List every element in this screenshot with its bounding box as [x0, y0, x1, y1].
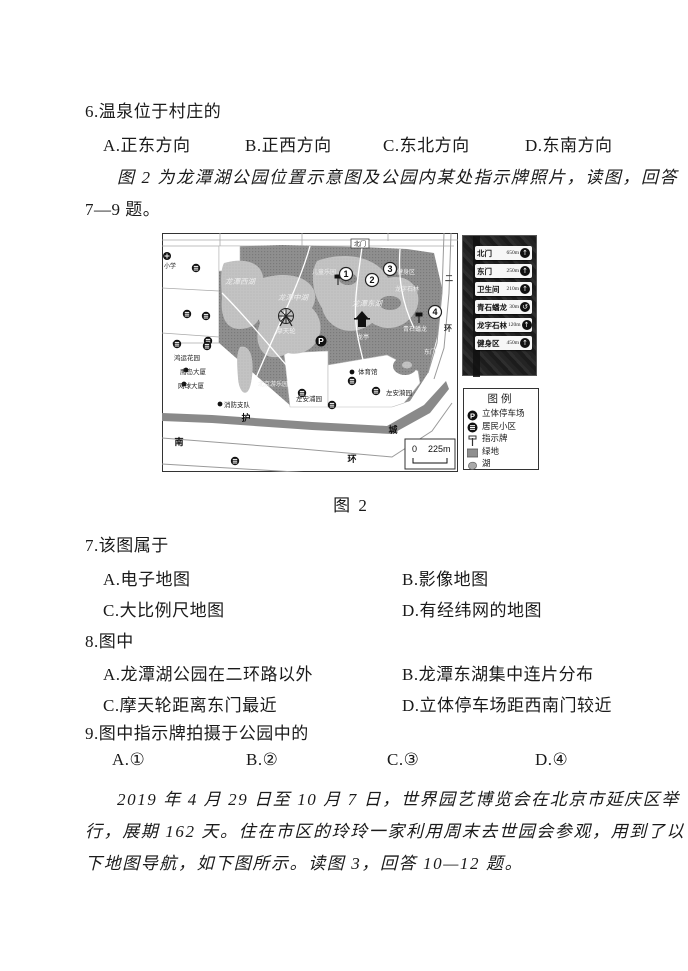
map-label: 环	[444, 324, 452, 333]
legend-item: 居民小区	[467, 420, 535, 433]
sign-plate-distance: 450m	[506, 340, 519, 346]
map-label: 城	[388, 424, 397, 435]
direction-arrow-icon: ↑	[520, 248, 530, 258]
map-label: 青石蟠龙	[403, 325, 427, 333]
map-label: 南	[174, 436, 183, 447]
sign-plate: 龙字石林120m↑	[475, 318, 532, 332]
lake-finger	[237, 347, 253, 393]
legend-item-label: 指示牌	[482, 432, 508, 444]
figure-2: P 1234 小学龙潭西湖龙潭中湖龙潭东湖摩天轮儿童乐园北门东门龙亭青石蟠龙龙字…	[162, 233, 540, 472]
q8-stem: 8.图中	[85, 627, 134, 652]
svg-text:P: P	[318, 336, 324, 346]
map-label: 北京游乐园	[258, 380, 288, 388]
residential-area-icon	[203, 342, 211, 350]
map-label: 二	[445, 274, 453, 283]
map-label: 鹰岛大厦	[180, 367, 207, 376]
sign-plate-name: 龙字石林	[477, 322, 507, 329]
sign-plate-name: 北门	[477, 250, 492, 257]
map-label: 环	[347, 454, 356, 464]
sign-plate-distance: 210m	[506, 286, 519, 292]
svg-text:2: 2	[369, 275, 374, 285]
direction-arrow-icon: ↑	[520, 338, 530, 348]
q6-options: A.正东方向 B.正西方向 C.东北方向 D.东南方向	[0, 131, 560, 155]
direction-arrow-icon: ↑	[520, 266, 530, 276]
q7-stem: 7.该图属于	[85, 531, 169, 556]
q9-options: A.① B.② C.③ D.④	[0, 750, 560, 774]
q8-options-row1: A.龙潭湖公园在二环路以外 B.龙潭东湖集中连片分布	[0, 660, 560, 684]
legend-item-label: 居民小区	[482, 420, 516, 432]
svg-text:3: 3	[387, 264, 392, 274]
q6-option-b: B.正西方向	[245, 131, 332, 156]
map-label: 护	[241, 412, 250, 423]
map-label: 左安漪园	[386, 388, 412, 397]
q6-stem: 6.温泉位于村庄的	[85, 97, 221, 122]
legend-item-label: 湖	[482, 457, 491, 469]
fig3-intro-line2: 行，展期 162 天。住在市区的玲玲一家利用周末去世园会参观，用到了以	[85, 817, 685, 842]
sign-plate-name: 东门	[477, 268, 492, 275]
legend-item: 指示牌	[467, 432, 535, 445]
direction-arrow-icon: ↺	[520, 302, 530, 312]
q8-option-c: C.摩天轮距离东门最近	[103, 691, 277, 716]
map-label: 龙潭西湖	[225, 277, 256, 286]
parking-legend-icon: P	[467, 408, 478, 419]
fig2-intro-line1: 图 2 为龙潭湖公园位置示意图及公园内某处指示牌照片，读图，回答	[117, 163, 678, 188]
signpost-legend-icon	[467, 433, 478, 444]
sign-plate: 北门650m↑	[475, 246, 532, 260]
map-label: 龙亭	[357, 333, 369, 341]
sign-plate-name: 卫生间	[477, 286, 500, 293]
svg-text:4: 4	[432, 307, 437, 317]
residential-area-icon	[231, 457, 239, 465]
scale-distance: 225m	[428, 444, 451, 454]
fig3-intro-line1: 2019 年 4 月 29 日至 10 月 7 日，世界园艺博览会在北京市延庆区…	[117, 785, 680, 810]
residential-area-icon	[202, 312, 210, 320]
q9-option-a: A.①	[112, 750, 145, 770]
q8-options-row2: C.摩天轮距离东门最近 D.立体停车场距西南门较近	[0, 691, 560, 715]
map-label: 儿童乐园	[312, 268, 336, 276]
green-legend-icon	[467, 445, 478, 456]
sign-plate: 健身区450m↑	[475, 336, 532, 350]
scale-zero: 0	[412, 444, 417, 454]
map-number-marker: 2	[366, 274, 379, 287]
legend-item: 绿地	[467, 445, 535, 458]
sign-plate-distance: 120m	[508, 322, 521, 328]
q7-option-d: D.有经纬网的地图	[402, 596, 542, 621]
legend-item: P立体停车场	[467, 407, 535, 420]
map-label: 小学	[164, 262, 176, 270]
q6-option-a: A.正东方向	[103, 131, 191, 156]
map-number-marker: 4	[429, 306, 442, 319]
poi-dot-icon	[350, 370, 355, 375]
q9-stem: 9.图中指示牌拍摄于公园中的	[85, 719, 309, 744]
scale-bar: 0 225m	[405, 439, 455, 469]
residential-area-icon	[372, 387, 380, 395]
map-label: 东门	[424, 348, 436, 356]
map-label: 左安浦园	[296, 394, 322, 403]
legend-title: 图例	[467, 391, 535, 406]
lake-legend-icon	[467, 458, 478, 469]
direction-arrow-icon: ↑	[520, 284, 530, 294]
q8-option-a: A.龙潭湖公园在二环路以外	[103, 660, 313, 685]
map-parking-icon: P	[316, 336, 327, 347]
svg-text:P: P	[470, 411, 475, 420]
map-label: 体育馆	[358, 367, 378, 376]
map-label: 健身区	[397, 268, 415, 276]
residential-area-icon	[348, 377, 356, 385]
q7-option-a: A.电子地图	[103, 565, 191, 590]
q6-option-d: D.东南方向	[525, 131, 613, 156]
q9-option-d: D.④	[535, 750, 568, 770]
map-label: 龙潭中湖	[278, 293, 309, 302]
q6-option-c: C.东北方向	[383, 131, 470, 156]
q8-option-b: B.龙潭东湖集中连片分布	[402, 660, 594, 685]
fig2-caption: 图 2	[162, 491, 540, 516]
fig2-intro-line2: 7—9 题。	[85, 195, 160, 220]
park-map: P 1234 小学龙潭西湖龙潭中湖龙潭东湖摩天轮儿童乐园北门东门龙亭青石蟠龙龙字…	[162, 233, 458, 472]
exam-page: { "doc": { "q6": {"stem":"6.温泉位于村庄的", "o…	[0, 0, 688, 971]
map-label: 消防支队	[224, 400, 251, 409]
map-label: 龙潭东湖	[352, 299, 383, 308]
map-label: 摩天轮	[276, 326, 296, 335]
residential-area-icon	[328, 401, 336, 409]
legend-item-label: 立体停车场	[482, 407, 525, 419]
school-icon	[163, 252, 171, 260]
q7-options-row1: A.电子地图 B.影像地图	[0, 565, 560, 589]
map-label: 网球大厦	[178, 381, 205, 390]
legend-item-label: 绿地	[482, 445, 499, 457]
sign-plate-name: 青石蟠龙	[477, 304, 507, 311]
q7-options-row2: C.大比例尺地图 D.有经纬网的地图	[0, 596, 560, 620]
residential-area-icon	[183, 310, 191, 318]
map-label: 北门	[354, 240, 366, 248]
q8-option-d: D.立体停车场距西南门较近	[402, 691, 612, 716]
signpost-photo: 北门650m↑东门250m↑卫生间210m↑青石蟠龙30m↺龙字石林120m↑健…	[462, 235, 537, 376]
legend-item: 湖	[467, 457, 535, 470]
residential-area-icon	[173, 340, 181, 348]
svg-text:1: 1	[343, 269, 348, 279]
q9-option-c: C.③	[387, 750, 419, 770]
sign-plate: 青石蟠龙30m↺	[475, 300, 532, 314]
residential-area-icon	[192, 264, 200, 272]
q7-option-b: B.影像地图	[402, 565, 489, 590]
parking-icon: P	[316, 336, 327, 347]
map-number-marker: 3	[384, 263, 397, 276]
direction-arrow-icon: ↑	[522, 320, 532, 330]
map-label: 龙字石林	[395, 285, 419, 293]
sign-plate: 卫生间210m↑	[475, 282, 532, 296]
map-number-marker: 1	[340, 268, 353, 281]
map-legend: 图例 P立体停车场居民小区指示牌绿地湖	[463, 388, 539, 470]
map-label: 鸿运花园	[174, 353, 200, 362]
sign-plate-distance: 650m	[506, 250, 519, 256]
sign-plate-name: 健身区	[477, 340, 500, 347]
sign-plate: 东门250m↑	[475, 264, 532, 278]
fig3-intro-line3: 下地图导航，如下图所示。读图 3，回答 10—12 题。	[85, 849, 523, 874]
q7-option-c: C.大比例尺地图	[103, 596, 225, 621]
residential-legend-icon	[467, 420, 478, 431]
sign-plate-distance: 250m	[506, 268, 519, 274]
poi-dot-icon	[218, 402, 223, 407]
pond	[402, 362, 412, 369]
sign-plate-distance: 30m	[509, 304, 519, 310]
q9-option-b: B.②	[246, 750, 278, 770]
island	[379, 296, 401, 310]
